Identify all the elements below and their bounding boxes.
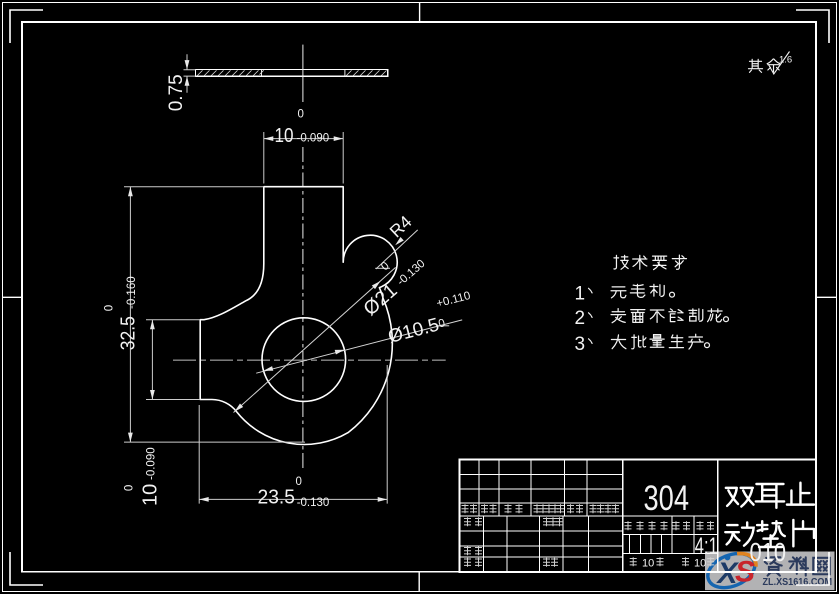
svg-text:1: 1 [575, 284, 586, 305]
svg-text:10: 10 [140, 484, 162, 506]
svg-text:0: 0 [296, 476, 302, 488]
svg-text:-0.090: -0.090 [146, 447, 158, 480]
svg-text:-0.160: -0.160 [126, 276, 138, 309]
svg-text:-0.090: -0.090 [297, 133, 330, 145]
svg-text:0: 0 [124, 485, 136, 491]
svg-text:4:1: 4:1 [695, 533, 718, 560]
svg-text:1.6: 1.6 [779, 55, 792, 66]
svg-text:0: 0 [298, 109, 304, 121]
svg-text:0: 0 [104, 305, 116, 311]
svg-text:304: 304 [644, 479, 690, 518]
svg-text:10: 10 [642, 558, 654, 570]
svg-text:3: 3 [575, 334, 586, 355]
svg-text:0.75: 0.75 [166, 74, 187, 111]
svg-text:32.5: 32.5 [118, 316, 140, 350]
svg-text:ZL.XS1616.COM: ZL.XS1616.COM [763, 576, 833, 588]
svg-text:2: 2 [575, 308, 586, 329]
svg-text:23.5: 23.5 [258, 486, 296, 508]
svg-text:10: 10 [275, 125, 294, 147]
svg-text:-0.130: -0.130 [297, 497, 330, 509]
svg-text:10: 10 [694, 558, 706, 570]
svg-text:010: 010 [750, 537, 787, 567]
